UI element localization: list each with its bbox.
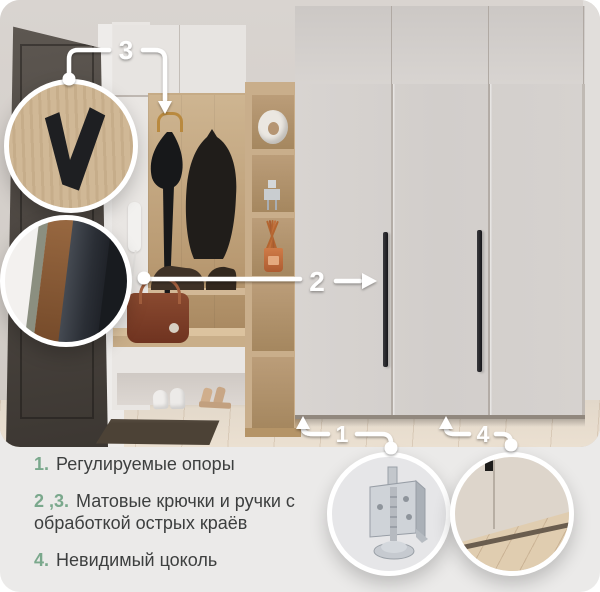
door-gap: [488, 84, 490, 418]
donut-vase: [258, 110, 288, 144]
bench-drawer: [119, 347, 247, 376]
legend-item-2-3: 2 ,3.Матовые крючки и ручки с обработкой…: [34, 491, 332, 535]
handle-notch: [485, 457, 493, 471]
shelf-cubby: [252, 282, 294, 351]
product-infographic: 3 2 1 4 1.Регулируемые опоры 2 ,3.Матовы…: [0, 0, 600, 592]
floor-closeup: [455, 457, 574, 576]
door-gap: [391, 84, 393, 418]
shelf-cubby: [252, 357, 294, 428]
adjustable-foot-inset: [327, 452, 451, 576]
robot-figurine: [262, 180, 282, 210]
panel-gap: [493, 457, 495, 529]
boots-right: [206, 267, 236, 290]
handle-closeup-inset: [0, 215, 132, 347]
legend: 1.Регулируемые опоры 2 ,3.Матовые крючки…: [34, 454, 332, 587]
door-gap: [583, 6, 584, 84]
umbrella: [151, 132, 183, 189]
shelf-base: [245, 428, 301, 437]
sneaker: [153, 390, 169, 410]
v-hook-icon: [9, 84, 133, 208]
doormat-rug: [96, 419, 222, 445]
legend-num-2-3: 2 ,3.: [34, 491, 69, 511]
wardrobe-handle: [477, 230, 482, 372]
legend-item-4: 4.Невидимый цоколь: [34, 550, 332, 572]
wardrobe-shadow: [295, 419, 585, 427]
legend-text-2-3: Матовые крючки и ручки с обработкой остр…: [34, 491, 295, 533]
wardrobe-upper-doors: [295, 6, 585, 86]
plinth-closeup-inset: [450, 452, 574, 576]
legend-num-4: 4.: [34, 550, 49, 570]
leather-bag: [127, 293, 189, 343]
door-gap: [391, 6, 392, 84]
sneaker: [170, 388, 186, 410]
wardrobe-handle: [383, 232, 388, 367]
reed-diffuser-jar: [264, 248, 283, 272]
legend-text-4: Невидимый цоколь: [56, 550, 217, 570]
legend-num-1: 1.: [34, 454, 49, 474]
wardrobe-right-edge: [582, 84, 585, 418]
coat: [186, 129, 236, 259]
hook-closeup-inset: [4, 79, 138, 213]
door-gap: [488, 6, 489, 84]
legend-item-1: 1.Регулируемые опоры: [34, 454, 332, 476]
adjustable-foot-icon: [332, 457, 446, 571]
wardrobe-doors: [295, 84, 585, 418]
legend-text-1: Регулируемые опоры: [56, 454, 235, 474]
